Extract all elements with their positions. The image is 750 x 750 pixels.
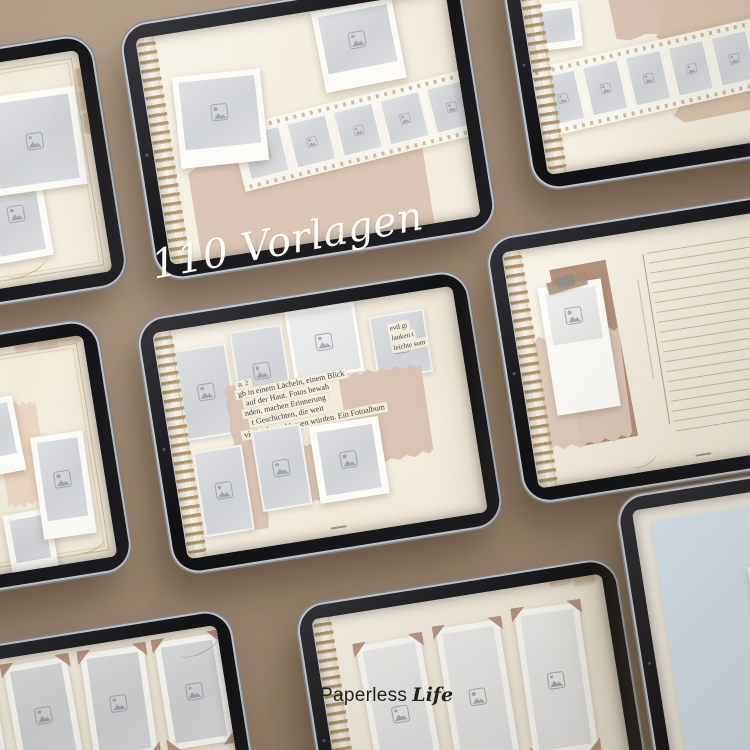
washi-tab bbox=[81, 111, 93, 132]
photo-placeholder bbox=[318, 4, 397, 75]
photo-placeholder bbox=[0, 675, 2, 750]
tablet-bottom-center bbox=[296, 559, 654, 750]
blue-paper-sheet bbox=[650, 466, 750, 750]
image-placeholder-icon bbox=[642, 72, 654, 84]
tablet-screen bbox=[632, 449, 750, 750]
photo-frame bbox=[0, 85, 88, 196]
tablet-top-right bbox=[497, 0, 750, 190]
photo-placeholder bbox=[667, 39, 716, 98]
photo-page bbox=[632, 449, 750, 750]
image-placeholder-icon bbox=[445, 100, 457, 112]
photo-placeholder bbox=[624, 49, 673, 108]
photo-frame bbox=[308, 416, 389, 504]
polaroid-frame bbox=[311, 0, 407, 94]
image-placeholder-icon bbox=[339, 450, 358, 469]
tablet-screen bbox=[512, 0, 750, 175]
washi-tab bbox=[572, 573, 595, 584]
tablet-screen bbox=[311, 573, 639, 750]
washi-tab bbox=[14, 338, 37, 350]
scrapbook-page bbox=[0, 335, 118, 605]
tablet-screen bbox=[501, 200, 750, 488]
tablet-screen bbox=[0, 625, 256, 750]
gold-vein-decoration bbox=[628, 447, 659, 471]
tablet-screen: n. 2 gb in einem Lächeln, einem Blick au… bbox=[152, 286, 488, 560]
ruled-lines bbox=[645, 217, 750, 438]
tablet-middle-right bbox=[486, 185, 750, 503]
photo-placeholder bbox=[179, 75, 262, 150]
front-camera bbox=[322, 738, 327, 743]
image-placeholder-icon bbox=[34, 705, 54, 725]
image-placeholder-icon bbox=[197, 382, 216, 401]
photo-placeholder bbox=[709, 29, 750, 88]
polaroid-frame bbox=[172, 68, 269, 168]
image-placeholder-icon bbox=[211, 103, 230, 122]
photo-placeholder bbox=[0, 402, 16, 459]
brand-logo: PaperlessLife bbox=[320, 684, 453, 707]
image-placeholder-icon bbox=[351, 123, 363, 135]
image-placeholder-icon bbox=[599, 82, 611, 94]
tablet-middle-center: n. 2 gb in einem Lächeln, einem Blick au… bbox=[137, 271, 503, 574]
brand-word-paperless: Paperless bbox=[320, 685, 407, 706]
image-placeholder-icon bbox=[184, 681, 203, 700]
image-placeholder-icon bbox=[314, 332, 333, 351]
image-placeholder-icon bbox=[214, 481, 233, 500]
photo-placeholder bbox=[10, 663, 78, 750]
journal-page bbox=[501, 200, 750, 488]
tablet-screen bbox=[0, 335, 118, 605]
tablet-middle-left bbox=[0, 320, 132, 620]
corner-mount-frame bbox=[513, 602, 598, 750]
tablet-top-left bbox=[0, 35, 127, 335]
tablet-screen bbox=[0, 50, 113, 320]
page-marker bbox=[331, 525, 347, 529]
washi-tab bbox=[78, 89, 90, 110]
photo-placeholder bbox=[425, 78, 477, 135]
photo-placeholder bbox=[0, 93, 80, 188]
scrapbook-page bbox=[311, 573, 639, 750]
front-camera bbox=[162, 447, 167, 452]
promo-scene: n. 2 gb in einem Lächeln, einem Blick au… bbox=[0, 0, 750, 750]
tablet-bottom-left bbox=[0, 610, 271, 750]
photo-placeholder bbox=[545, 286, 602, 345]
image-placeholder-icon bbox=[53, 470, 72, 489]
front-camera bbox=[512, 371, 517, 376]
washi-tab bbox=[74, 67, 86, 88]
front-camera bbox=[648, 661, 653, 666]
washi-tab bbox=[57, 335, 80, 343]
photo-placeholder bbox=[520, 609, 591, 750]
gold-vein-decoration bbox=[76, 532, 107, 556]
photo-placeholder bbox=[37, 437, 89, 521]
page-marker bbox=[696, 452, 712, 456]
washi-tab bbox=[548, 574, 571, 586]
front-camera bbox=[522, 63, 527, 68]
scrapbook-page bbox=[0, 625, 256, 750]
photo-placeholder bbox=[581, 58, 630, 117]
photo-placeholder bbox=[378, 90, 430, 147]
image-placeholder-icon bbox=[685, 62, 697, 74]
image-placeholder-icon bbox=[391, 704, 411, 724]
image-placeholder-icon bbox=[564, 306, 583, 325]
image-placeholder-icon bbox=[347, 29, 367, 49]
corner-mount-frame bbox=[3, 656, 85, 750]
photo-placeholder bbox=[87, 652, 152, 750]
washi-tab bbox=[36, 337, 59, 349]
photo-placeholder bbox=[331, 101, 383, 158]
image-placeholder-icon bbox=[109, 693, 128, 712]
scrapbook-page bbox=[0, 50, 113, 320]
corner-mount-frame bbox=[80, 645, 158, 750]
image-placeholder-icon bbox=[305, 135, 317, 147]
scrapbook-page: n. 2 gb in einem Lächeln, einem Blick au… bbox=[152, 286, 488, 560]
scrapbook-page bbox=[512, 0, 750, 175]
image-placeholder-icon bbox=[468, 687, 487, 706]
image-placeholder-icon bbox=[6, 204, 26, 224]
front-camera bbox=[145, 153, 150, 158]
photo-placeholder bbox=[316, 424, 381, 496]
journal-divider-line bbox=[637, 279, 654, 378]
image-placeholder-icon bbox=[398, 112, 410, 124]
image-placeholder-icon bbox=[25, 131, 44, 150]
photo-placeholder bbox=[285, 113, 337, 170]
brand-word-life: Life bbox=[412, 684, 453, 706]
image-placeholder-icon bbox=[272, 458, 291, 477]
image-placeholder-icon bbox=[728, 52, 740, 64]
image-placeholder-icon bbox=[546, 670, 565, 689]
